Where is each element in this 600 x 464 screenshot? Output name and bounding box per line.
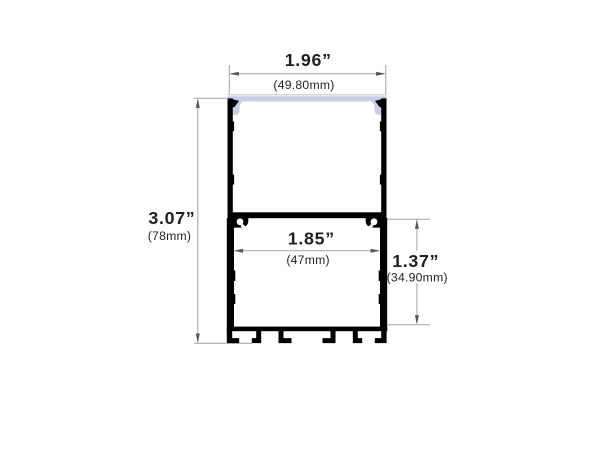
svg-text:1.96”: 1.96” [285,50,332,70]
svg-text:(47mm): (47mm) [286,253,329,267]
svg-text:(78mm): (78mm) [148,229,191,243]
svg-text:1.37”: 1.37” [392,251,439,271]
svg-text:1.85”: 1.85” [288,229,335,249]
svg-text:3.07”: 3.07” [148,208,195,228]
svg-text:(49.80mm): (49.80mm) [273,78,334,92]
svg-text:(34.90mm): (34.90mm) [387,271,448,285]
